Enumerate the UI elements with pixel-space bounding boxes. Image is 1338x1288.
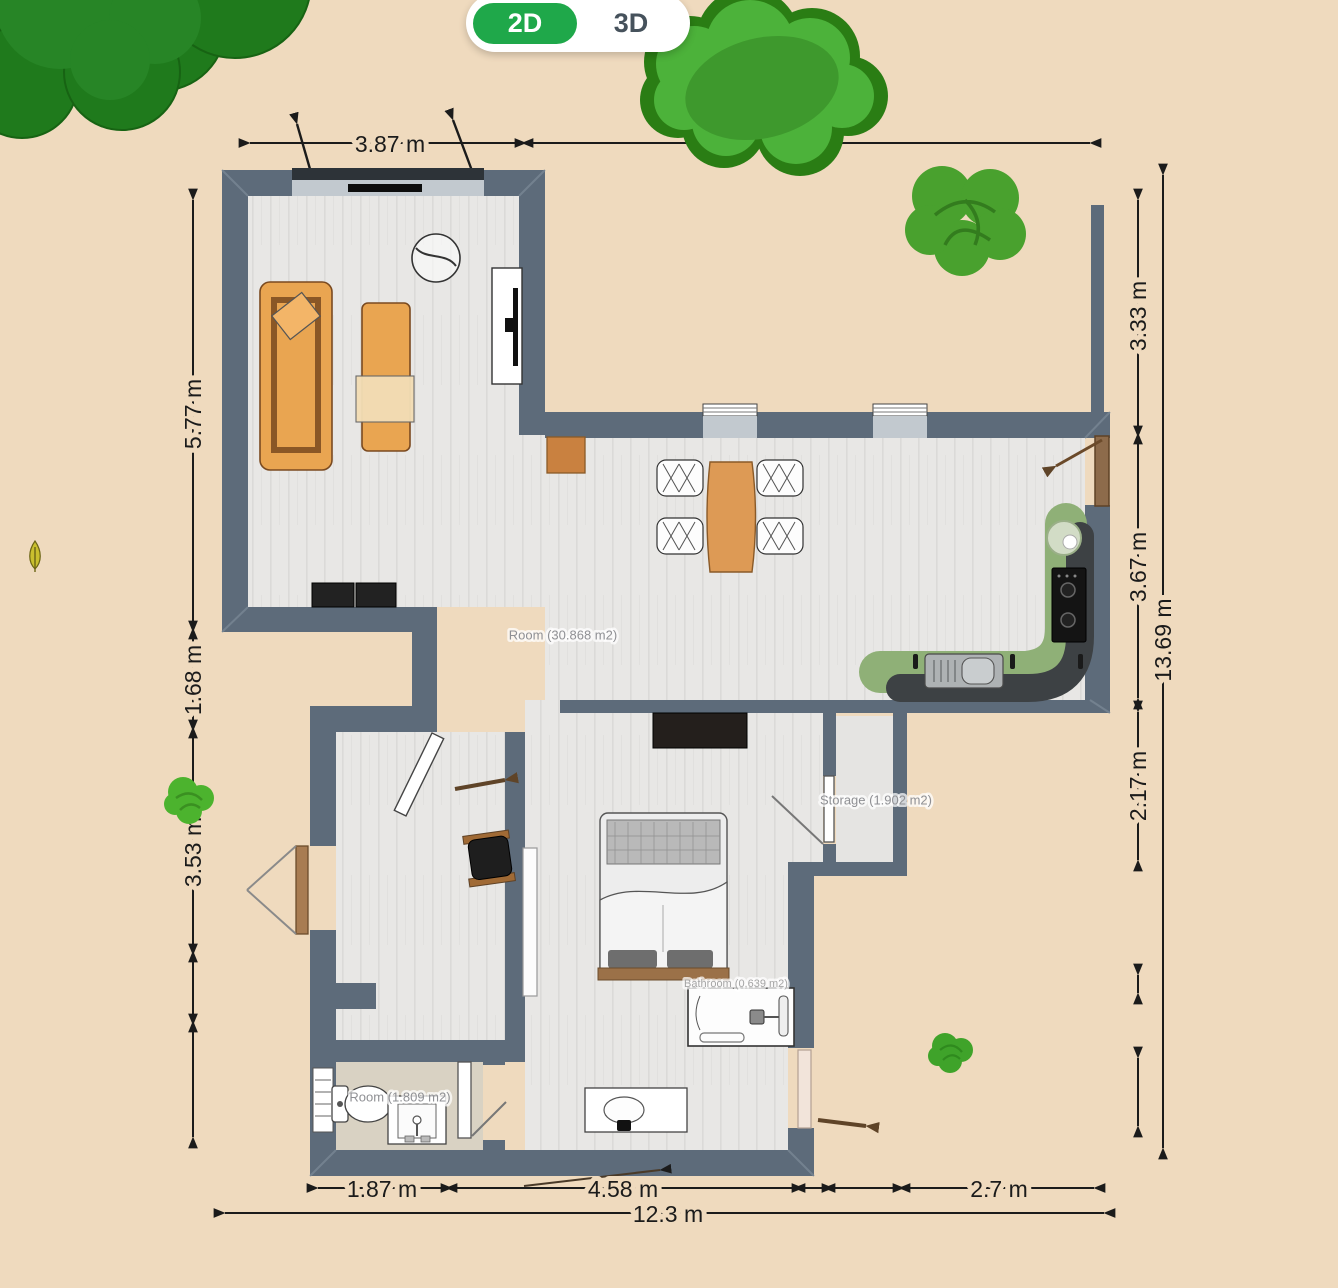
bush-left-icon[interactable] <box>164 777 214 824</box>
hall-exterior-door[interactable] <box>247 846 308 934</box>
dim-bottom-1: 4.58 m <box>588 1176 658 1202</box>
living-window[interactable] <box>292 168 484 196</box>
tv-console[interactable] <box>492 268 522 384</box>
room-label-storage: Storage (1.902 m2) <box>820 793 932 808</box>
bathroom-window[interactable] <box>313 1068 333 1132</box>
terrace-wall <box>1091 205 1104 412</box>
tree-top-left-icon[interactable] <box>0 0 311 138</box>
view-2d-button[interactable]: 2D <box>473 3 577 44</box>
sliding-door[interactable] <box>523 848 537 996</box>
floorplan-canvas[interactable]: Room (30.868 m2) Storage (1.902 m2) Room… <box>0 0 1338 1288</box>
shower-room[interactable] <box>688 988 794 1046</box>
bed[interactable] <box>598 813 729 980</box>
faucet <box>1078 654 1083 669</box>
sofa[interactable] <box>260 282 332 470</box>
vanity[interactable] <box>585 1088 687 1132</box>
side-table[interactable] <box>547 437 585 473</box>
room-label-main: Room (30.868 m2) <box>509 628 617 643</box>
dim-right-0: 3.33 m <box>1125 281 1151 351</box>
stove <box>1052 568 1086 642</box>
view-3d-button[interactable]: 3D <box>579 3 683 44</box>
room-label-ensuite: Bathroom (0.639 m2) <box>684 978 788 990</box>
dim-left-2: 3.53 m <box>180 817 206 887</box>
sprout-left-icon[interactable] <box>30 541 41 572</box>
dim-right-2: 2.17 m <box>1125 751 1151 821</box>
office-chair[interactable] <box>463 830 516 887</box>
dining-window-2[interactable] <box>873 404 927 438</box>
dim-left-0: 5.77 m <box>180 379 206 449</box>
chaise-lounge[interactable] <box>356 303 414 451</box>
dim-right-1: 3.67 m <box>1125 532 1151 602</box>
dim-bottom-total: 12.3 m <box>633 1201 703 1227</box>
dining-window-1[interactable] <box>703 404 757 438</box>
floorplan[interactable]: Room (30.868 m2) Storage (1.902 m2) Room… <box>222 168 1110 1186</box>
bush-bottom-right-icon[interactable] <box>928 1033 973 1073</box>
dim-bottom-0: 1.87 m <box>347 1176 417 1202</box>
vanity-faucet <box>617 1120 631 1131</box>
kitchen-sink <box>925 654 1003 688</box>
dining-table[interactable] <box>707 462 756 572</box>
bush-top-right-icon[interactable] <box>905 166 1026 276</box>
chaise-blanket <box>356 376 414 422</box>
shower-head <box>750 1010 764 1024</box>
entry-door[interactable] <box>798 1050 866 1128</box>
dim-right-total: 13.69 m <box>1150 598 1176 681</box>
room-label-toilet: Room (1.809 m2) <box>349 1090 450 1105</box>
dim-left-1: 1.68 m <box>180 645 206 715</box>
dresser[interactable] <box>653 713 747 748</box>
view-mode-toggle[interactable]: 2D 3D <box>466 0 690 52</box>
storage-floor <box>836 716 893 862</box>
faucet <box>1010 654 1015 669</box>
canvas[interactable]: Room (30.868 m2) Storage (1.902 m2) Room… <box>0 0 1338 1288</box>
dim-bottom-2: 2.7 m <box>970 1176 1028 1202</box>
sideboard[interactable] <box>312 583 396 607</box>
dim-top: 3.87 m <box>355 131 425 157</box>
window-radiator <box>348 184 422 192</box>
ceiling-fan-icon[interactable] <box>412 234 460 282</box>
faucet <box>913 654 918 669</box>
